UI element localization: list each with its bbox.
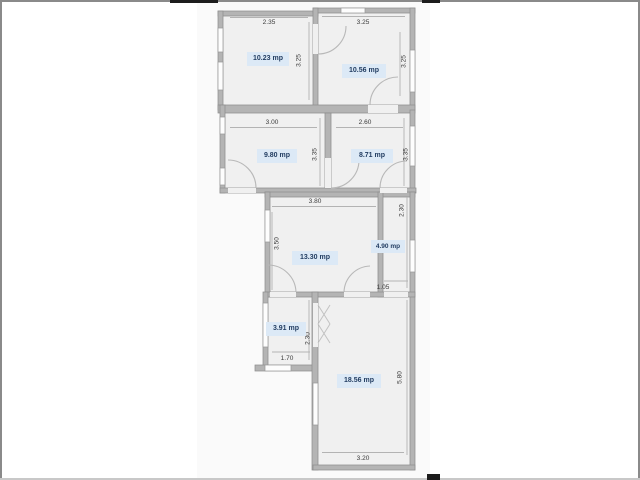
window: [341, 8, 365, 13]
wall: [218, 11, 318, 16]
dim-label: 3.20: [344, 455, 382, 462]
door-opening: [313, 24, 318, 54]
door-opening: [270, 292, 296, 297]
wall: [313, 8, 318, 110]
door-opening: [228, 188, 256, 193]
dim-label: 3.25: [401, 47, 408, 77]
window: [410, 50, 415, 92]
room-area-label: 3.91 mp: [266, 322, 306, 336]
window: [265, 365, 291, 371]
dim-label: 3.80: [296, 198, 334, 205]
window: [410, 126, 415, 166]
floorplan-viewport: 2.35 3.25 3.25 3.25 3.00 3.35 2.60 3.35 …: [0, 0, 640, 480]
room-area-label: 13.30 mp: [292, 251, 338, 265]
dim-label: 5.80: [397, 363, 404, 393]
door-opening: [384, 292, 408, 297]
door-opening: [313, 303, 318, 347]
dim-label: 3.35: [312, 140, 319, 170]
dim-label: 3.50: [274, 229, 281, 259]
window: [218, 62, 223, 90]
dim-label: 1.70: [268, 355, 306, 362]
dim-label: 3.00: [253, 119, 291, 126]
window: [220, 117, 225, 134]
door-opening: [344, 292, 370, 297]
room-area-label: 8.71 mp: [351, 149, 393, 163]
dim-label: 2.60: [346, 119, 384, 126]
wall: [410, 192, 415, 470]
window: [313, 383, 318, 425]
wall: [265, 192, 270, 297]
dim-label: 3.35: [403, 140, 410, 170]
room-area-label: 18.56 mp: [337, 374, 381, 388]
room-floor: [318, 13, 410, 105]
floorplan-drawing: [0, 0, 640, 480]
door-opening: [325, 158, 331, 188]
window: [220, 168, 225, 185]
window: [265, 210, 270, 242]
window: [410, 240, 415, 272]
room-area-label: 10.56 mp: [342, 64, 386, 78]
dim-label: 1.05: [364, 284, 402, 291]
window: [218, 28, 223, 52]
room-area-label: 10.23 mp: [247, 52, 289, 66]
room-area-label: 9.80 mp: [257, 149, 297, 163]
wall: [313, 465, 415, 470]
wall: [218, 11, 223, 110]
room-floor: [270, 197, 378, 292]
door-opening: [368, 105, 398, 113]
room-area-label: 4.90 mp: [371, 240, 405, 253]
dim-label: 3.25: [296, 46, 303, 76]
door-opening: [380, 188, 407, 193]
dim-label: 2.30: [399, 196, 406, 226]
dim-label: 2.35: [250, 19, 288, 26]
dim-label: 3.25: [344, 19, 382, 26]
